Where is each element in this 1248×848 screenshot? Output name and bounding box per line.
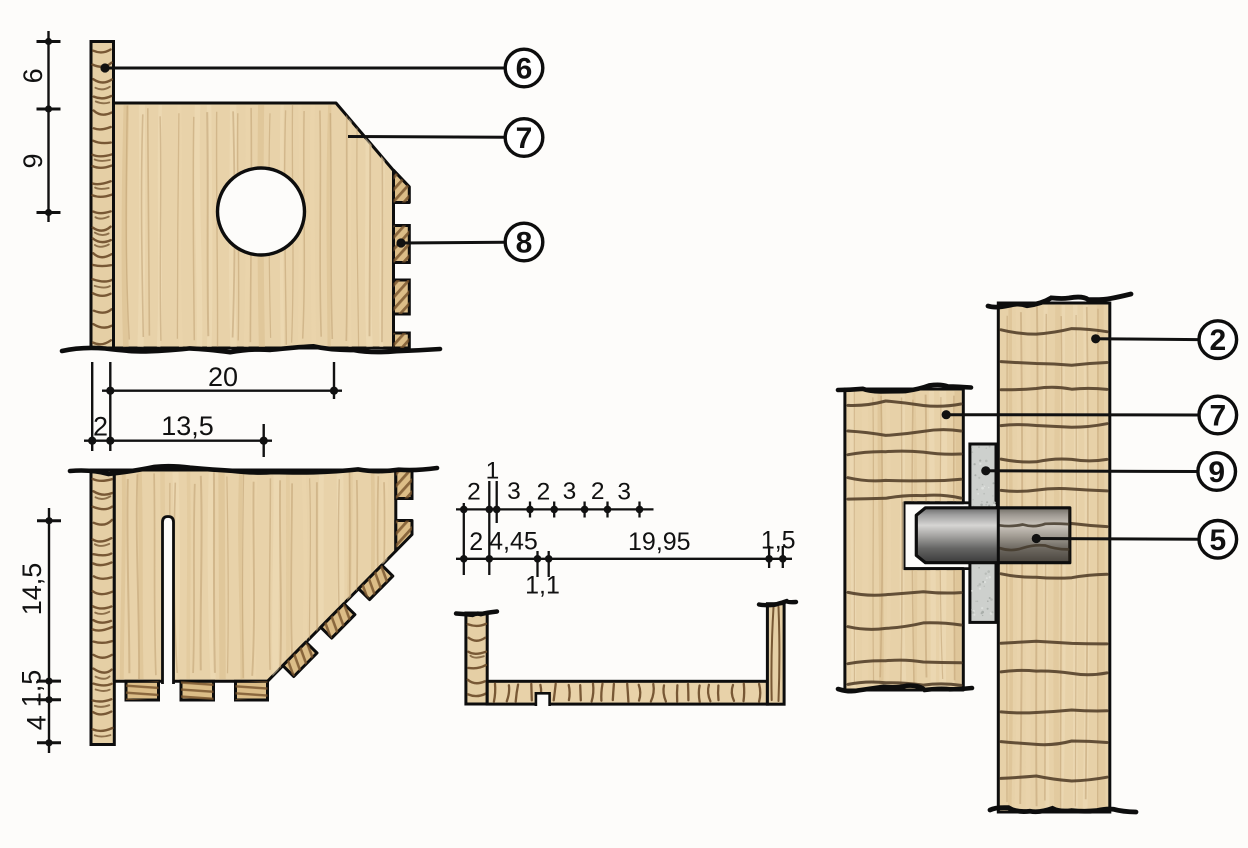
svg-text:1,5: 1,5 [17, 670, 47, 708]
svg-text:20: 20 [208, 362, 238, 392]
svg-text:19,95: 19,95 [628, 528, 691, 556]
svg-text:3: 3 [563, 478, 577, 505]
svg-text:9: 9 [18, 153, 48, 168]
svg-text:1: 1 [486, 458, 500, 485]
svg-text:7: 7 [516, 122, 533, 155]
svg-text:1,1: 1,1 [525, 572, 560, 600]
svg-text:13,5: 13,5 [161, 411, 214, 441]
svg-text:2: 2 [1209, 324, 1226, 357]
svg-text:4,45: 4,45 [489, 528, 538, 556]
svg-text:5: 5 [1209, 524, 1226, 557]
svg-text:6: 6 [516, 53, 533, 86]
svg-text:2: 2 [469, 528, 483, 556]
svg-text:14,5: 14,5 [17, 563, 47, 616]
svg-text:1,5: 1,5 [761, 527, 796, 555]
svg-text:2: 2 [467, 479, 481, 506]
svg-text:2: 2 [591, 478, 605, 505]
svg-text:4: 4 [22, 715, 52, 730]
svg-text:6: 6 [18, 68, 48, 83]
svg-text:9: 9 [1208, 456, 1225, 489]
svg-text:3: 3 [617, 479, 631, 506]
svg-text:3: 3 [507, 478, 521, 505]
svg-text:7: 7 [1209, 400, 1226, 433]
svg-text:2: 2 [93, 412, 108, 442]
svg-text:2: 2 [537, 479, 551, 506]
svg-text:8: 8 [516, 227, 533, 260]
